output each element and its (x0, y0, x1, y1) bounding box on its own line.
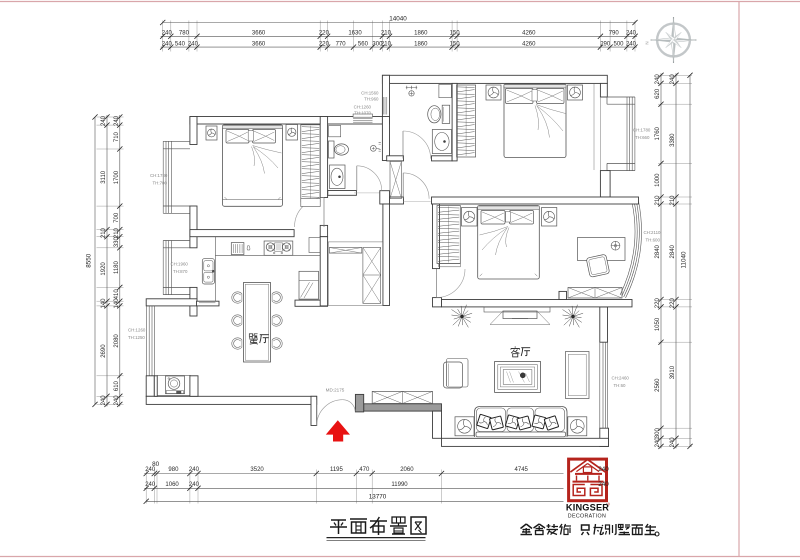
svg-text:1630: 1630 (348, 31, 362, 37)
svg-text:80: 80 (152, 461, 160, 468)
svg-text:KINGSER: KINGSER (566, 503, 609, 513)
svg-text:330: 330 (114, 237, 120, 248)
svg-text:1700: 1700 (114, 170, 120, 184)
svg-text:TH:960: TH:960 (364, 97, 379, 102)
svg-text:620: 620 (655, 88, 661, 99)
svg-text:210: 210 (101, 227, 107, 238)
svg-text:2840: 2840 (655, 244, 661, 258)
svg-text:240: 240 (162, 31, 173, 37)
svg-text:3380: 3380 (670, 133, 676, 147)
svg-text:4260: 4260 (522, 31, 536, 37)
svg-text:140: 140 (101, 298, 107, 309)
svg-text:220: 220 (319, 31, 330, 37)
svg-text:210: 210 (114, 227, 120, 238)
svg-text:770: 770 (336, 41, 347, 47)
svg-text:210: 210 (670, 195, 676, 206)
svg-text:240: 240 (114, 115, 120, 126)
svg-text:1050: 1050 (655, 317, 661, 331)
svg-text:®: ® (608, 503, 611, 507)
svg-text:TH:60: TH:60 (614, 383, 627, 388)
svg-text:14040: 14040 (389, 15, 407, 22)
svg-text:240: 240 (189, 482, 200, 488)
svg-text:210: 210 (381, 41, 392, 47)
svg-text:TH:600: TH:600 (646, 238, 661, 243)
svg-text:3660: 3660 (252, 41, 266, 47)
svg-text:TH:870: TH:870 (173, 269, 188, 274)
svg-text:MD:2175: MD:2175 (326, 388, 345, 393)
svg-text:790: 790 (609, 31, 620, 37)
svg-text:2560: 2560 (655, 378, 661, 392)
svg-text:1060: 1060 (165, 482, 179, 488)
svg-text:700: 700 (114, 212, 120, 223)
svg-text:240: 240 (626, 31, 637, 37)
svg-text:240: 240 (101, 395, 107, 406)
svg-text:2060: 2060 (400, 467, 414, 473)
svg-text:CH:2460: CH:2460 (612, 376, 630, 381)
svg-text:290: 290 (600, 41, 611, 47)
svg-text:CH:1260: CH:1260 (128, 328, 146, 333)
svg-text:TH:660: TH:660 (635, 135, 650, 140)
svg-text:240: 240 (101, 115, 107, 126)
svg-text:CH:1960: CH:1960 (171, 262, 189, 267)
svg-text:13770: 13770 (369, 494, 387, 501)
svg-text:240: 240 (188, 41, 199, 47)
svg-text:150: 150 (450, 41, 461, 47)
svg-text:240: 240 (626, 41, 637, 47)
svg-text:2080: 2080 (114, 334, 120, 348)
svg-text:980: 980 (168, 467, 179, 473)
svg-text:210: 210 (655, 195, 661, 206)
svg-text:3910: 3910 (670, 365, 676, 379)
svg-text:240: 240 (655, 74, 661, 85)
svg-text:540: 540 (175, 41, 186, 47)
svg-text:240: 240 (670, 437, 676, 448)
svg-text:500: 500 (613, 41, 624, 47)
svg-text:TH:1250: TH:1250 (128, 335, 145, 340)
svg-text:240: 240 (598, 466, 609, 473)
svg-text:410: 410 (114, 289, 120, 300)
svg-text:240: 240 (598, 481, 609, 488)
svg-text:2840: 2840 (670, 244, 676, 258)
svg-text:220: 220 (319, 41, 330, 47)
svg-text:3520: 3520 (250, 467, 264, 473)
svg-text:1860: 1860 (414, 31, 428, 37)
svg-text:N: N (645, 41, 650, 44)
svg-text:11040: 11040 (681, 251, 688, 269)
svg-text:CH:2110: CH:2110 (644, 230, 662, 235)
svg-text:4745: 4745 (515, 467, 529, 473)
svg-text:240: 240 (670, 74, 676, 85)
svg-text:DECORATION: DECORATION (568, 514, 606, 520)
svg-text:470: 470 (359, 467, 370, 473)
svg-text:1180: 1180 (114, 260, 120, 274)
svg-text:240: 240 (655, 437, 661, 448)
svg-text:560: 560 (358, 41, 369, 47)
svg-text:CH:1780: CH:1780 (633, 128, 651, 133)
svg-text:CH:1780: CH:1780 (150, 173, 168, 178)
svg-text:CH:1560: CH:1560 (361, 91, 379, 96)
svg-text:610: 610 (114, 380, 120, 391)
svg-text:TH:1070: TH:1070 (354, 110, 371, 115)
svg-text:210: 210 (381, 31, 392, 37)
svg-text:4260: 4260 (522, 41, 536, 47)
svg-text:3110: 3110 (101, 170, 107, 184)
svg-text:150: 150 (450, 31, 461, 37)
svg-text:CH:1260: CH:1260 (354, 105, 372, 110)
svg-text:1760: 1760 (655, 126, 661, 140)
svg-text:3660: 3660 (252, 31, 266, 37)
svg-text:140: 140 (114, 298, 120, 309)
svg-text:2690: 2690 (101, 344, 107, 358)
svg-text:240: 240 (114, 395, 120, 406)
svg-text:1195: 1195 (330, 467, 344, 473)
svg-text:300: 300 (655, 428, 661, 439)
svg-text:1860: 1860 (414, 41, 428, 47)
svg-text:8550: 8550 (86, 253, 93, 268)
svg-text:220: 220 (670, 298, 676, 309)
svg-text:1000: 1000 (655, 173, 661, 187)
svg-text:240: 240 (145, 482, 156, 488)
svg-text:11990: 11990 (391, 482, 408, 488)
svg-text:240: 240 (162, 41, 173, 47)
svg-text:710: 710 (114, 131, 120, 142)
svg-text:240: 240 (189, 467, 200, 473)
svg-text:220: 220 (655, 298, 661, 309)
svg-text:1920: 1920 (101, 262, 107, 276)
svg-text:TH:700: TH:700 (153, 181, 168, 186)
svg-text:780: 780 (179, 31, 190, 37)
